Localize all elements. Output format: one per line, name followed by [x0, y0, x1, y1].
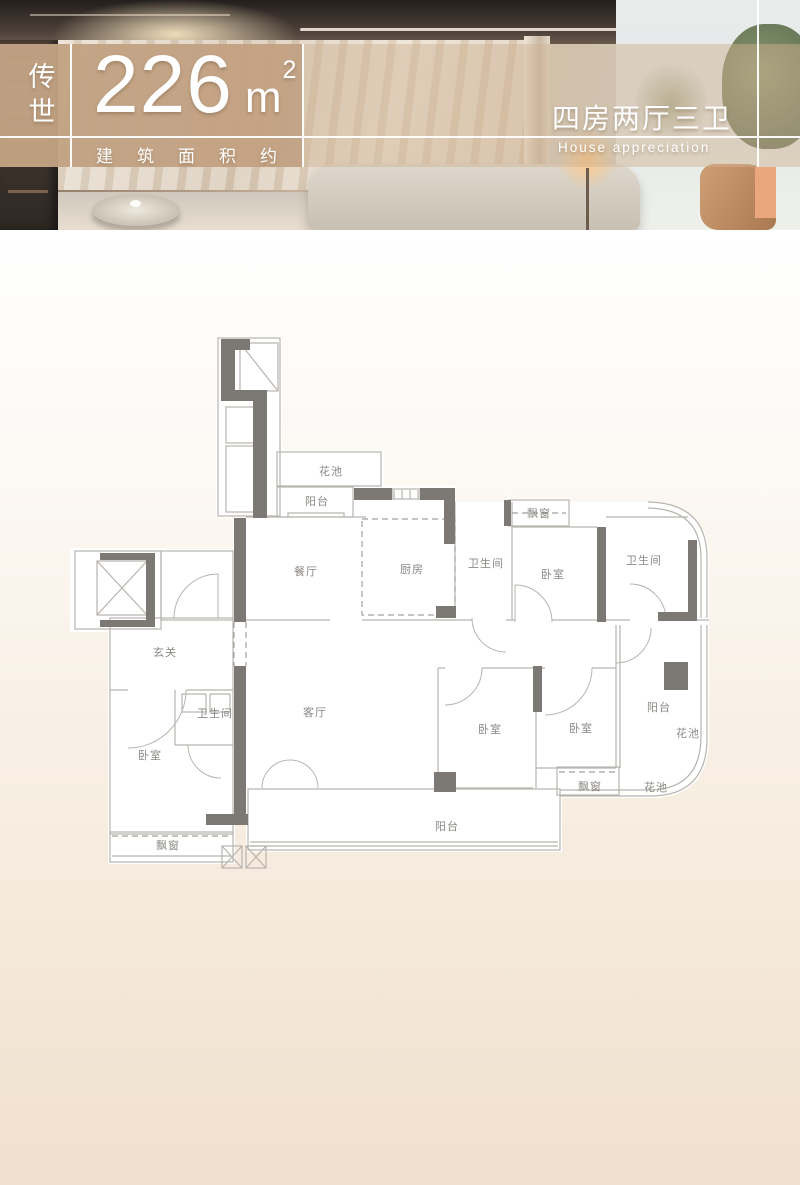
room-label-living: 客厅 [303, 705, 327, 719]
room-label-kitchen: 厨房 [400, 563, 424, 576]
series-label: 传世 [26, 60, 58, 130]
room-label-bedroom-mid: 卧室 [478, 722, 502, 736]
accent-chip [755, 167, 776, 218]
room-label-bedroom-left: 卧室 [138, 748, 162, 762]
room-label-bath-mid: 卫生间 [468, 556, 504, 570]
area-unit-base: m [245, 73, 282, 122]
coffee-cup [130, 200, 141, 207]
divider-vertical-1 [70, 44, 72, 167]
room-label-bedroom-right: 卧室 [569, 721, 593, 735]
room-label-bath-left: 卫生间 [197, 706, 233, 720]
room-label-bath-right: 卫生间 [626, 553, 662, 567]
area-number: 226 [93, 44, 233, 126]
room-label-dining: 餐厅 [294, 564, 318, 578]
room-label-baywindow-left: 飘窗 [156, 838, 180, 852]
area-caption: 建筑面积约 [96, 142, 301, 167]
area-unit: m2 [245, 74, 296, 126]
room-label-balcony-top: 阳台 [305, 494, 329, 508]
floor-plan: 花池 阳台 餐厅 厨房 卫生间 飘窗 卧室 卫生间 玄关 卫生间 卧室 飘窗 客… [0, 230, 800, 1185]
hero-photo: 传世 226 m2 建筑面积约 四房两厅三卫 House appreciatio… [0, 0, 800, 230]
coffee-table [92, 194, 180, 226]
room-label-balcony-bottom: 阳台 [435, 819, 459, 833]
room-label-flowerbed-right: 花池 [676, 727, 700, 740]
floor-lamp-stand [586, 168, 589, 230]
photo-ceiling-light [300, 28, 630, 31]
room-label-flowerbed-bottom: 花池 [644, 781, 668, 794]
divider-vertical-3 [757, 0, 759, 168]
room-label-baywindow-bottom: 飘窗 [578, 779, 602, 793]
room-label-balcony-right: 阳台 [647, 700, 671, 714]
plan-room-fill [70, 337, 709, 864]
layout-title: 四房两厅三卫 [552, 97, 732, 137]
area-figure: 226 m2 [93, 44, 295, 126]
room-label-flowerbed-top: 花池 [319, 465, 343, 478]
room-label-baywindow-top: 飘窗 [527, 506, 551, 520]
divider-vertical-2 [302, 44, 304, 167]
poster-page: 传世 226 m2 建筑面积约 四房两厅三卫 House appreciatio… [0, 0, 800, 1185]
plan-canvas: 花池 阳台 餐厅 厨房 卫生间 飘窗 卧室 卫生间 玄关 卫生间 卧室 飘窗 客… [0, 230, 800, 1185]
area-unit-exponent: 2 [282, 56, 296, 84]
room-label-bedroom-top: 卧室 [541, 567, 565, 581]
layout-subtitle: House appreciation [558, 140, 710, 155]
room-label-foyer: 玄关 [153, 645, 177, 659]
